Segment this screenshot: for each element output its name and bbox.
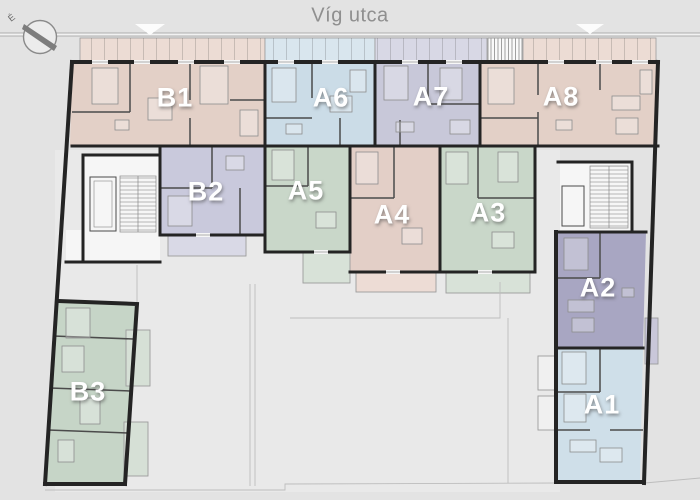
- apartment-label-b3[interactable]: B3: [70, 377, 107, 408]
- apartment-label-a2[interactable]: A2: [580, 273, 617, 304]
- street-name: Víg utca: [311, 5, 388, 28]
- apartment-label-a7[interactable]: A7: [413, 82, 450, 113]
- elevator-right: [562, 186, 584, 226]
- apartment-label-a8[interactable]: A8: [543, 82, 580, 113]
- floorplan-canvas: É Víg utca B1 A6 A7 A8 B2 A5 A4 A3 A2 A1…: [0, 0, 700, 500]
- apartment-label-b1[interactable]: B1: [157, 83, 194, 114]
- floorplan-drawing: É: [0, 0, 700, 500]
- apartment-label-b2[interactable]: B2: [188, 177, 225, 208]
- street-edge: [0, 33, 700, 36]
- apartment-label-a4[interactable]: A4: [374, 200, 411, 231]
- street-terraces: [80, 38, 656, 62]
- entrance-marker-right-icon: [576, 24, 604, 34]
- apartment-label-a5[interactable]: A5: [288, 176, 325, 207]
- compass-north-label: É: [6, 12, 17, 24]
- apartment-label-a1[interactable]: A1: [584, 390, 621, 421]
- apartment-label-a6[interactable]: A6: [313, 83, 350, 114]
- apartment-label-a3[interactable]: A3: [470, 198, 507, 229]
